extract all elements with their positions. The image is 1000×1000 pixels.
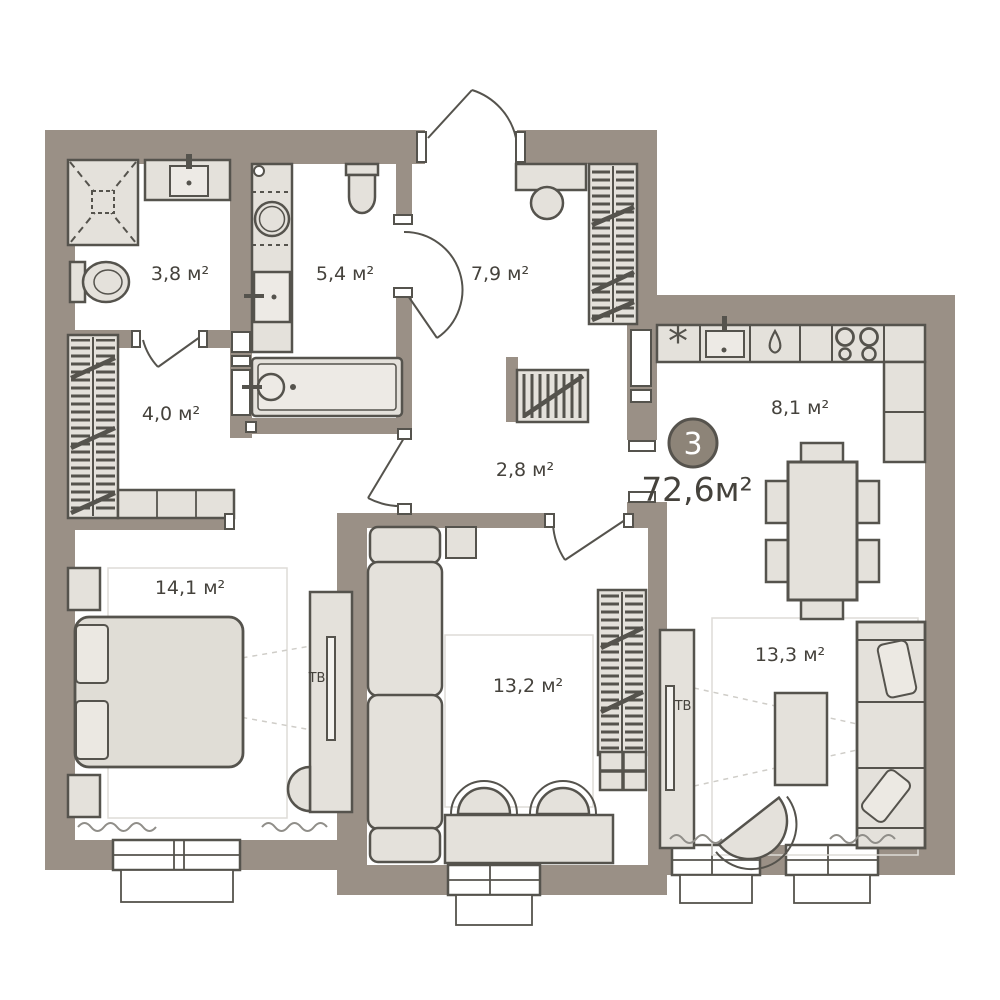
pouf-icon xyxy=(288,767,310,811)
plant-icon xyxy=(600,752,646,790)
shelf xyxy=(516,164,586,190)
stool-icon xyxy=(531,187,563,219)
desk-chairs xyxy=(451,781,596,814)
dining-table xyxy=(788,462,857,600)
sofa xyxy=(368,527,442,862)
chair xyxy=(766,540,788,582)
area-label-corridor: 2,8 м² xyxy=(496,459,554,481)
bathroom xyxy=(242,164,402,416)
coffee-table xyxy=(775,693,827,785)
tv-icon xyxy=(327,637,335,740)
chair xyxy=(857,540,879,582)
nightstand xyxy=(68,568,100,610)
room-door xyxy=(553,520,625,560)
floor-plan: * xyxy=(0,0,1000,1000)
tv-label: ТВ xyxy=(308,671,326,686)
desk xyxy=(445,815,613,863)
tv-label: ТВ xyxy=(674,699,692,714)
chair xyxy=(766,481,788,523)
laundry-counter xyxy=(252,164,292,352)
wall-bathroom-bottom xyxy=(232,418,412,434)
vent-shaft-icon xyxy=(631,330,651,386)
wardrobe-icon xyxy=(589,164,637,324)
living-window-2 xyxy=(786,845,878,903)
toilet-icon xyxy=(70,262,129,302)
chair xyxy=(857,481,879,523)
vent-shaft-icon xyxy=(631,390,651,402)
area-label-room: 13,2 м² xyxy=(493,675,563,697)
vent-shaft-icon xyxy=(232,332,250,352)
entry-hall xyxy=(516,164,637,422)
pillow xyxy=(76,701,108,759)
wall-right xyxy=(925,295,955,875)
floor-plan-canvas: * xyxy=(0,0,1000,1000)
total-area: 72,6м² xyxy=(641,470,753,509)
nightstand xyxy=(68,775,100,817)
toilet-icon xyxy=(346,164,378,213)
wardrobe-icon xyxy=(598,590,646,755)
chair xyxy=(537,788,589,814)
dining-table-group xyxy=(766,443,879,619)
room-window xyxy=(448,865,540,925)
wardrobe-hall xyxy=(68,335,234,518)
area-label-hall: 4,0 м² xyxy=(142,403,200,425)
shower-room-door xyxy=(143,332,207,367)
wall-kitchen-top xyxy=(657,295,955,325)
wardrobe-icon xyxy=(68,335,118,518)
chair xyxy=(801,599,843,619)
entrance-door xyxy=(428,90,516,138)
bedroom-window xyxy=(113,840,240,902)
chair xyxy=(458,788,510,814)
chair xyxy=(801,443,843,463)
bathtub-icon xyxy=(242,358,402,416)
valve-icon xyxy=(254,166,264,176)
wardrobe-low-icon xyxy=(517,370,588,422)
room-count: 3 xyxy=(683,427,702,462)
area-label-entry: 7,9 м² xyxy=(471,263,529,285)
corridor-door xyxy=(368,438,404,506)
bench-cabinet xyxy=(118,490,234,518)
pillow xyxy=(76,625,108,683)
sofa xyxy=(857,622,925,848)
tv-cabinet: ТВ xyxy=(288,592,352,812)
tv-icon xyxy=(666,686,674,790)
bathroom-door xyxy=(404,232,462,338)
vent-shaft-icon xyxy=(232,370,250,415)
shower-cabin-icon xyxy=(68,160,138,245)
wall-room-top-1 xyxy=(343,513,553,528)
sink-icon xyxy=(145,154,230,200)
area-label-living: 13,3 м² xyxy=(755,644,825,666)
bedroom: ТВ xyxy=(68,568,352,817)
area-label-bedroom: 14,1 м² xyxy=(155,577,225,599)
apartment-summary: 3 72,6м² xyxy=(641,419,753,509)
area-label-bathroom: 5,4 м² xyxy=(316,263,374,285)
fridge-icon: * xyxy=(668,319,688,365)
vent-shaft-icon xyxy=(232,356,250,366)
area-label-shower: 3,8 м² xyxy=(151,263,209,285)
area-label-kitchen: 8,1 м² xyxy=(771,397,829,419)
side-table xyxy=(446,527,476,558)
tv-cabinet: ТВ xyxy=(660,630,694,848)
